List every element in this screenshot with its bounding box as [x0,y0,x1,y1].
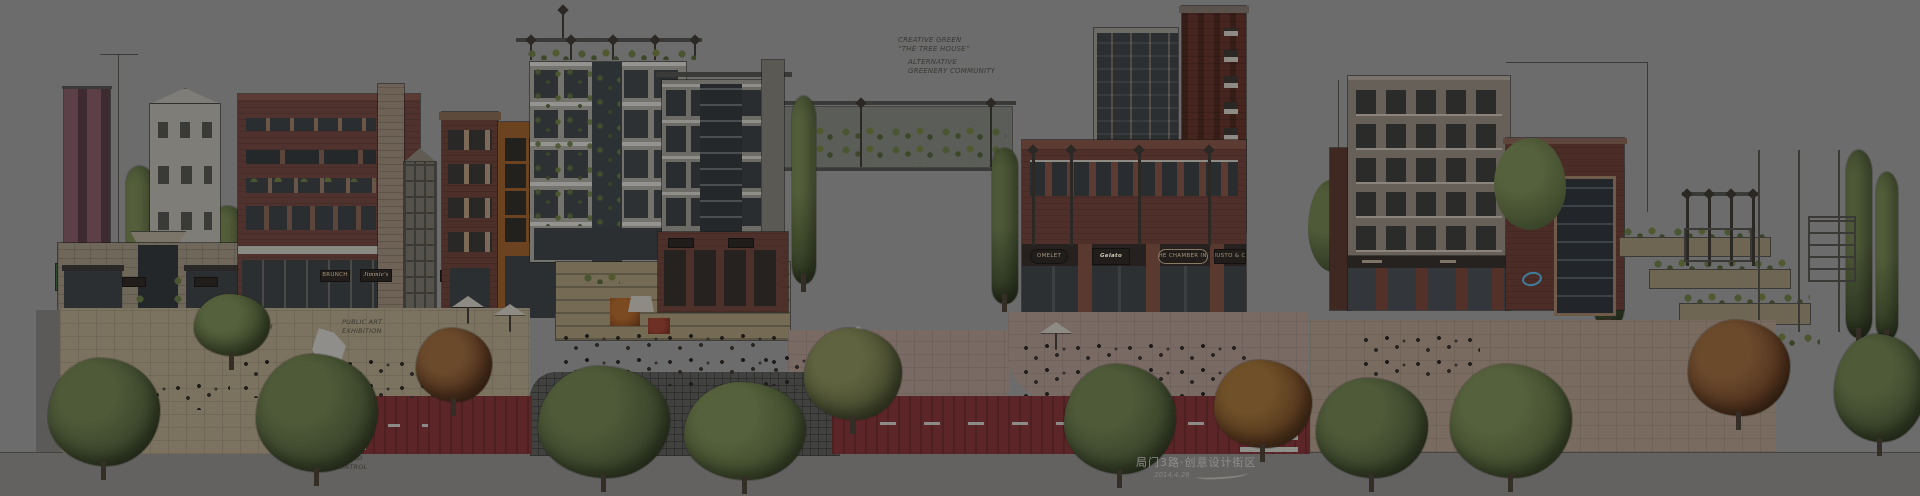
retail-base [1348,256,1510,310]
brick-pier [1416,268,1428,310]
pergola-post [1752,196,1755,266]
street-tree [1316,378,1428,492]
blank-sign-board [728,238,754,248]
window-band [246,150,376,164]
window-band [1356,124,1502,150]
street-tree-autumn [1214,360,1312,462]
planter [580,270,620,284]
roof-mast [562,12,564,38]
window-band [448,232,492,252]
cypress-tree [1876,172,1898,348]
frame-post [1798,150,1800,332]
date-inscription: 2014.4.26 [1154,472,1190,479]
blank-sign-board [122,277,146,287]
atrium-green-wall [594,72,620,252]
storefront-sign: GIUSTO & CO [1214,249,1246,264]
storefront-sign: OMELET [1030,249,1068,264]
street-tree [538,366,670,492]
rooftop-annotation: CREATIVE GREEN “THE TREE HOUSE” ALTERNAT… [898,36,995,77]
street-tree [256,354,378,486]
ornament-pole [1070,152,1073,246]
dimension-line [1647,62,1648,212]
poplar-tree [792,96,816,292]
street-tree [1450,364,1572,492]
brick-pier [1078,244,1092,312]
dimension-line [1506,62,1648,63]
frame-post [1758,150,1760,332]
public-art-annotation: PUBLIC ART EXHIBITION [342,318,382,336]
low-frame-structure [1684,228,1752,262]
umbrella [494,304,526,315]
window-band [1030,160,1238,196]
gable-roof [150,88,220,104]
foliage-mass [1494,138,1566,230]
corner-turret [404,162,436,310]
planter-band [246,174,376,182]
street-tree [684,382,806,494]
storefront-glass [64,269,122,311]
street-tree-autumn [416,328,492,416]
planter [170,273,184,309]
window-band [158,166,212,184]
storefront-sign: Gelato [1092,248,1130,265]
blank-sign-board [194,277,218,287]
brick-pier [1492,268,1504,310]
window-band [1356,158,1502,184]
window-band [448,198,492,218]
awning [62,265,124,271]
parapet [1348,76,1510,80]
umbrella [452,296,484,307]
window-band [1356,192,1502,218]
window-band [1356,90,1502,116]
lane-dashes [388,424,428,427]
brick-pier [1376,268,1388,310]
vine-planting [532,66,596,226]
brick-sliver-tower [1330,148,1350,310]
storefront-sign: Jimmie's [360,269,392,282]
arcade-glass [664,250,782,306]
annotation-line: CREATIVE GREEN [898,36,995,45]
brick-arcade-base [658,232,788,312]
tower-cap [62,86,112,89]
storefront-sign: BRUNCH [320,270,350,282]
annotation-line: “THE TREE HOUSE” [898,45,995,54]
storefront-sign: THE CHAMBER INN [1158,249,1208,264]
annotation-line: GREENERY COMMUNITY [908,67,995,76]
curtain-wall-glass [700,84,742,232]
post [860,105,862,167]
blank-sign-board [668,238,694,248]
apartment-building [1348,76,1510,256]
terrace-wall [1650,270,1790,288]
street-tree-autumn [1688,320,1790,430]
street-tree [804,328,902,434]
annotation-line: ALTERNATIVE [908,58,995,67]
window-band [246,118,376,131]
sign-mark [1440,260,1456,263]
umbrella [1040,322,1072,333]
sign-mark [1362,260,1382,263]
parapet-tower [762,60,784,232]
street-tree [48,358,160,480]
scaffold-tower [1808,216,1856,282]
window-band [158,122,212,138]
title-block: 局门3路·创意设计街区 2014.4.26 [1136,456,1257,479]
elevation-canvas: CREATIVE GREEN “THE TREE HOUSE” ALTERNAT… [0,0,1920,496]
brick-pier [1456,268,1468,310]
dimension-line [100,54,138,55]
poplar-tree [992,148,1018,312]
window-band [448,164,492,184]
ornament-pole [1138,152,1141,246]
blue-logo [1521,270,1543,288]
ornament-pole [1208,152,1211,246]
street-tree [1834,334,1920,456]
cornice [1179,6,1249,13]
window-band [448,130,492,150]
cornice [439,112,501,120]
roof-garden [524,46,696,60]
window-band [158,212,212,230]
ornament-pole [1032,152,1035,246]
market-stall [628,296,654,312]
entry-canopy [130,231,186,243]
retail-block [1022,140,1246,312]
window-band [246,206,376,230]
tower-cap [1094,28,1178,33]
slim-brick-tower [442,112,498,312]
title-inscription: 局门3路·创意设计街区 [1136,456,1257,469]
window-band [1356,226,1502,252]
